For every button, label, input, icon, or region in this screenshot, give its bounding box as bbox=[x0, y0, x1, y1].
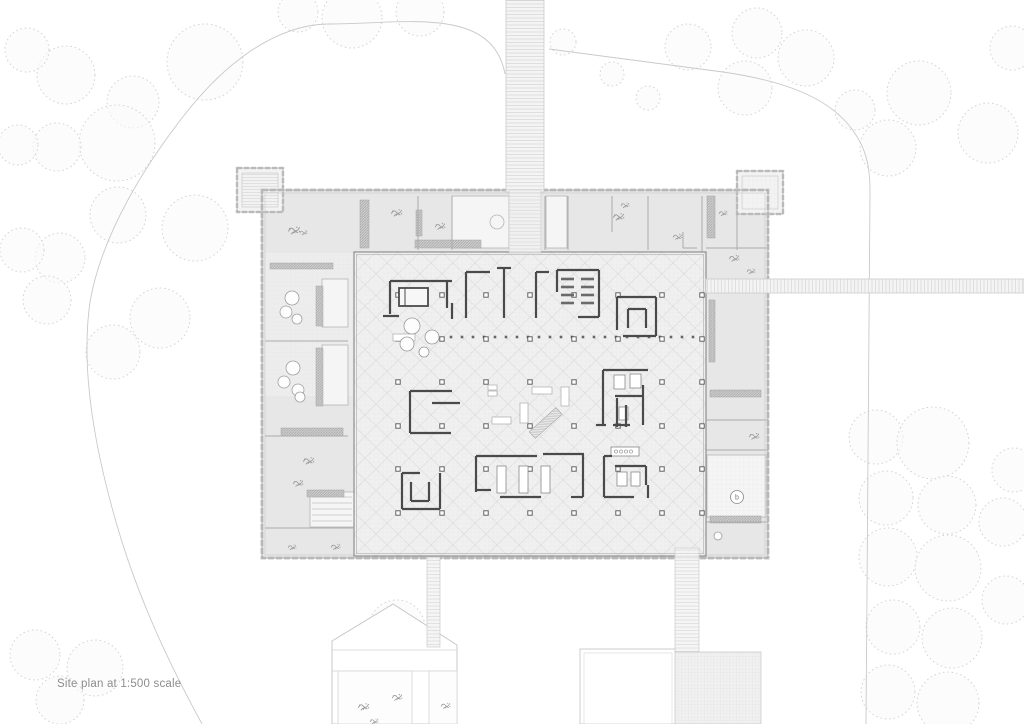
svg-text:b: b bbox=[735, 494, 739, 501]
caption-scale-label: Site plan at 1:500 scale bbox=[57, 678, 181, 690]
site-plan-drawing: b bbox=[0, 0, 1024, 724]
site-plan-page: b Site plan at 1:500 scale bbox=[0, 0, 1024, 724]
outbuildings bbox=[332, 604, 676, 724]
